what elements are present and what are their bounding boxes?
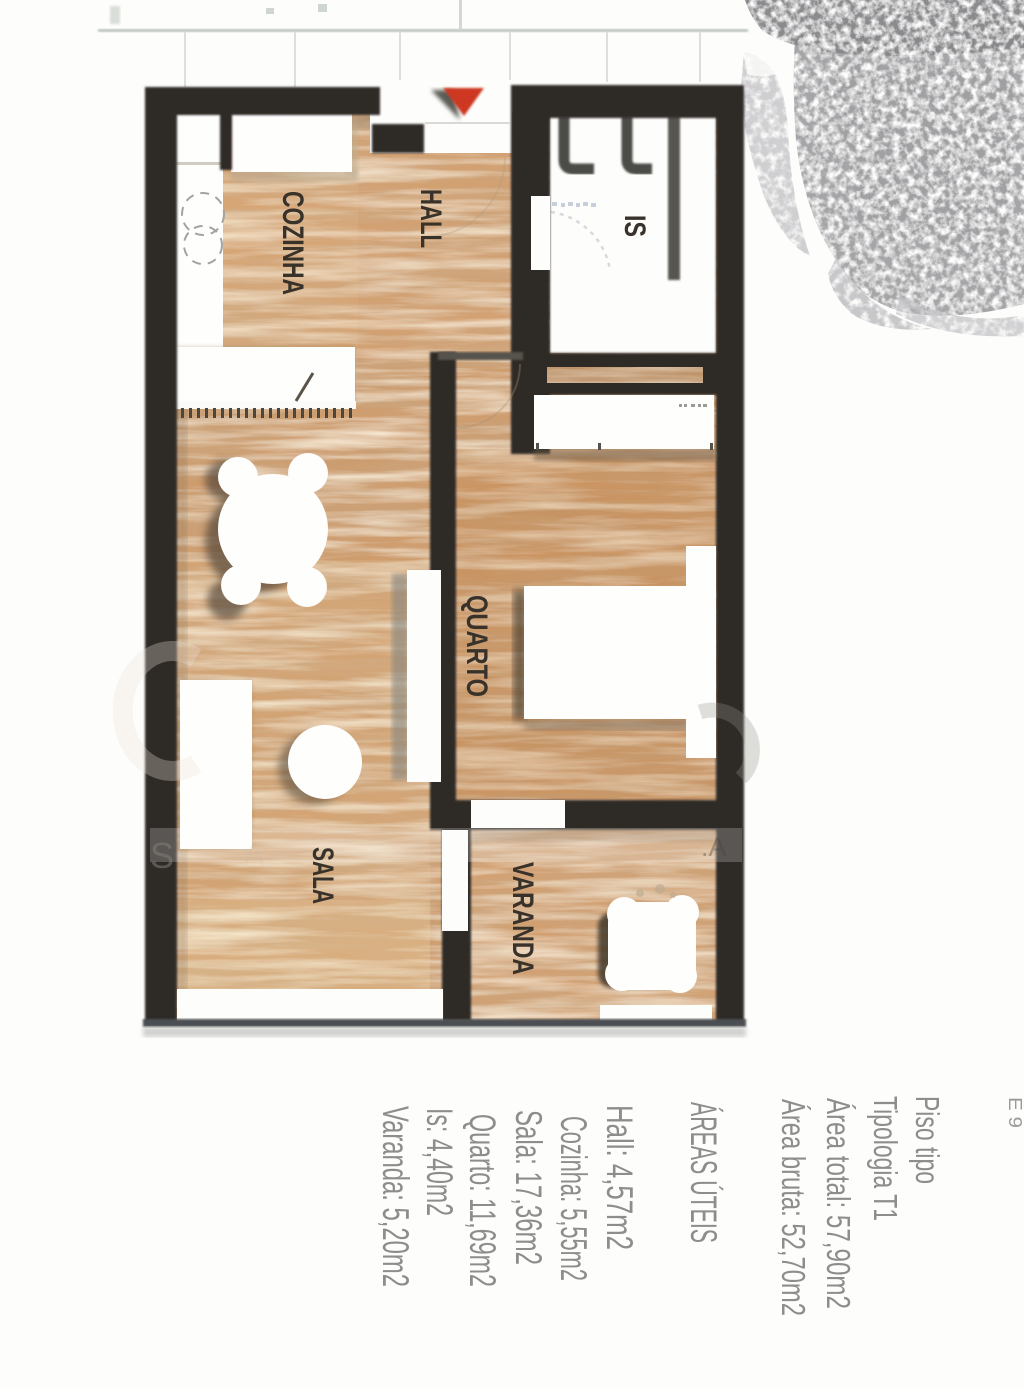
- svg-text:Hall: 4,57m2: Hall: 4,57m2: [599, 1105, 640, 1250]
- svg-text:A: A: [243, 837, 265, 873]
- svg-text:Is: 4,40m2: Is: 4,40m2: [419, 1108, 460, 1216]
- svg-text:.A: .A: [701, 832, 727, 862]
- svg-text:Quarto: 11,69m2: Quarto: 11,69m2: [462, 1114, 503, 1287]
- svg-text:Tipologia T1: Tipologia T1: [867, 1096, 904, 1221]
- svg-text:VARANDA: VARANDA: [506, 862, 539, 975]
- svg-text:SALA: SALA: [306, 847, 339, 904]
- svg-text:IS: IS: [618, 215, 651, 237]
- svg-text:ÁREAS ÚTEIS: ÁREAS ÚTEIS: [683, 1102, 724, 1243]
- svg-text:Cozinha: 5,55m2: Cozinha: 5,55m2: [553, 1116, 594, 1281]
- svg-text:QUARTO: QUARTO: [460, 595, 493, 697]
- svg-text:Área bruta: 52,70m2: Área bruta: 52,70m2: [775, 1099, 812, 1316]
- svg-text:Sala: 17,36m2: Sala: 17,36m2: [508, 1110, 549, 1265]
- svg-text:S: S: [150, 835, 174, 876]
- svg-text:Piso tipo: Piso tipo: [909, 1096, 946, 1184]
- svg-text:E 9: E 9: [1005, 1097, 1024, 1128]
- svg-text:Área total: 57,90m2: Área total: 57,90m2: [820, 1098, 857, 1309]
- svg-text:Varanda: 5,20m2: Varanda: 5,20m2: [375, 1106, 416, 1287]
- svg-text:HALL: HALL: [414, 189, 447, 248]
- svg-text:COZINHA: COZINHA: [276, 191, 309, 295]
